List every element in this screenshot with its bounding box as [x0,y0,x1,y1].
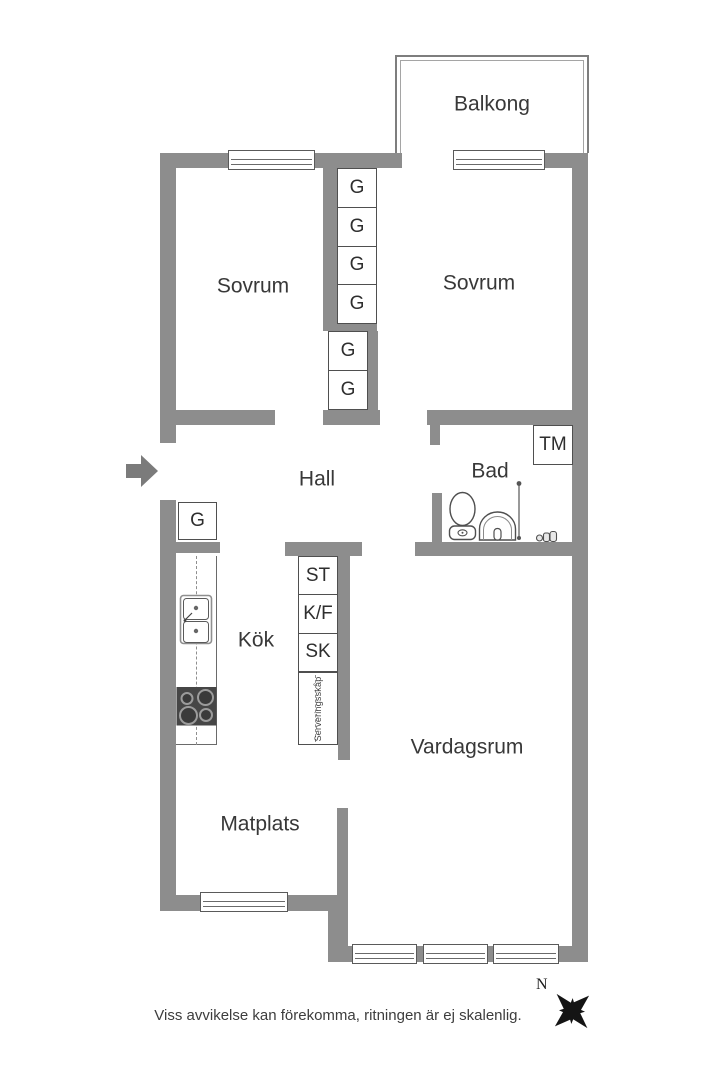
hall-label: Hall [299,469,335,490]
compass-north-label: N [536,976,548,994]
window-pane [203,901,285,907]
bathroom-label: Bad [471,461,508,482]
wall-living-bottom-seg4 [559,946,588,962]
window-bedroom-left [228,150,315,170]
wall-under-wardrobes [323,410,380,425]
wall-left-lower [160,500,176,911]
pantry-column: ST K/F SK [298,556,338,672]
wardrobe-column-upper: G G G G [337,168,377,324]
wardrobe-column-lower: G G [328,331,368,410]
kitchen-counter-dash [196,556,197,745]
wardrobe-g: G [329,332,367,370]
wall-left-upper [160,153,176,443]
wall-wardrobe-lower-right [368,331,378,410]
balcony-label: Balkong [454,94,530,115]
wall-pantry-right [338,556,350,760]
wall-living-bottom-seg1 [328,946,352,962]
wall-bedroom-right-bottom [427,410,572,425]
toilet-icon [450,493,476,540]
wardrobe-g: G [338,207,376,246]
window-living-1 [352,944,417,964]
entry-arrow-icon [126,455,158,487]
serving-cabinet: Serveringsskåp [298,672,338,745]
wardrobe-g: G [338,169,376,207]
pantry-sk: SK [299,633,337,671]
wall-bath-door-stub [430,425,440,445]
window-pane [355,953,414,959]
bath-accessories-icon [537,532,557,542]
wardrobe-kitchen: G [178,502,217,540]
disclaimer-text: Viss avvikelse kan förekomma, ritningen … [0,1007,676,1024]
window-pane [426,953,485,959]
window-pane [456,159,542,165]
wall-top-seg2 [315,153,402,168]
wall-dining-living [337,808,348,895]
dining-label: Matplats [220,814,299,835]
window-bedroom-right [453,150,545,170]
pantry-st: ST [299,557,337,594]
wall-dining-bottom-seg1 [160,895,200,911]
pantry-kf: K/F [299,594,337,632]
wall-right [572,153,588,962]
wall-bath-bottom [415,542,572,556]
wardrobe-g: G [338,284,376,323]
wall-pantry-top [285,542,362,556]
bedroom-right-label: Sovrum [443,273,515,294]
wardrobe-g: G [338,246,376,285]
bedroom-left-label: Sovrum [217,276,289,297]
wall-top-seg1 [160,153,228,168]
living-room-label: Vardagsrum [411,737,524,758]
wall-kitchen-stub [160,542,220,553]
wall-bath-left [432,493,442,542]
wardrobe-g: G [329,370,367,409]
window-pane [496,953,556,959]
wall-wardrobe-column-left [323,168,337,331]
window-pane [231,159,312,165]
washing-machine-box: TM [533,425,573,465]
window-living-2 [423,944,488,964]
serving-cabinet-label: Serveringsskåp [313,676,323,741]
floor-plan: Balkong G G G G G G G TM ST K [0,0,720,1080]
washbasin-icon [480,512,516,540]
kitchen-label: Kök [238,630,274,651]
window-living-3 [493,944,559,964]
wall-bedroom-left-bottom [176,410,275,425]
shower-rail-icon [517,481,522,540]
window-dining [200,892,288,912]
